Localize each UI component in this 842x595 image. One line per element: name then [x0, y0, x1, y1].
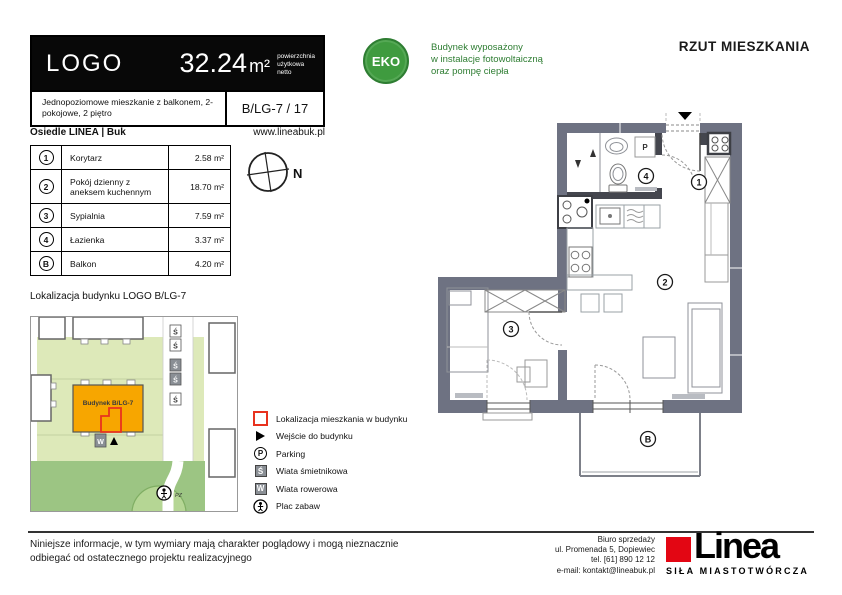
balcony-badge: B	[645, 434, 652, 444]
compass-rose-icon	[247, 152, 289, 192]
header-black-band: LOGO 32.24 m² powierzchnia użytkowa nett…	[32, 37, 323, 90]
corridor-fixtures	[705, 133, 730, 282]
brand-logo-wordmark: Linea	[694, 528, 778, 564]
bathroom-door-arc	[662, 155, 695, 188]
brand-tagline: SIŁA MIASTOTWÓRCZA	[666, 566, 814, 576]
area-note-line: netto	[277, 69, 291, 76]
chair	[517, 367, 530, 382]
header-card: LOGO 32.24 m² powierzchnia użytkowa nett…	[30, 35, 325, 127]
legend-item: Ś Wiata śmietnikowa	[252, 463, 427, 481]
sofa	[688, 303, 722, 393]
living-room-furniture	[595, 303, 722, 400]
dishwasher	[627, 210, 643, 223]
room-number-badge: 4	[39, 232, 54, 247]
page-title: RZUT MIESZKANIA	[636, 39, 810, 54]
bed	[447, 288, 488, 372]
compass-north-label: N	[293, 166, 302, 181]
header-subline: Osiedle LINEA | Buk www.lineabuk.pl	[30, 127, 325, 138]
area-note: powierzchnia użytkowa netto	[277, 51, 315, 77]
room-name: Balkon	[61, 252, 168, 275]
map-waste-label: Ś	[173, 342, 178, 351]
eco-text-line: w instalacje fotowoltaiczną	[431, 54, 543, 65]
map-bike-shelter-label: W	[97, 439, 104, 446]
map-waste-label: Ś	[173, 328, 178, 337]
window-sill	[483, 413, 532, 420]
room-name: Korytarz	[61, 146, 168, 169]
area-display: 32.24 m²	[179, 48, 270, 79]
bedroom-badge: 3	[508, 324, 513, 334]
eco-text-line: Budynek wyposażony	[431, 42, 523, 53]
tall-cabinet	[705, 203, 728, 282]
map-playground-label: PZ	[175, 493, 183, 499]
table-row: B Balkon 4.20 m²	[31, 252, 230, 275]
sales-office-info: Biuro sprzedaży ul. Promenada 5, Dopiewi…	[455, 535, 655, 576]
floor-plan: 1 4 2 3 B P	[430, 105, 765, 530]
eco-text: Budynek wyposażony w instalacje fotowolt…	[431, 38, 543, 84]
area-note-line: użytkowa	[277, 61, 304, 68]
room-area: 4.20 m²	[168, 252, 230, 275]
flat-plan-sheet: LOGO 32.24 m² powierzchnia użytkowa nett…	[0, 0, 842, 595]
room-area: 18.70 m²	[168, 170, 230, 203]
radiator	[455, 393, 483, 398]
site-map: Budynek B/LG-7 W Ś Ś Ś Ś Ś	[30, 316, 238, 512]
room-area: 3.37 m²	[168, 228, 230, 251]
website-url: www.lineabuk.pl	[253, 127, 325, 138]
disclaimer: Niniejsze informacje, w tym wymiary mają…	[30, 538, 398, 565]
map-waste-label: Ś	[173, 362, 178, 371]
legend-label: Parking	[276, 449, 305, 459]
playground-icon	[253, 499, 268, 514]
bar-stool	[604, 294, 622, 312]
installation-shaft	[558, 196, 592, 228]
disclaimer-line: odbiegać od ostatecznego projektu realiz…	[30, 553, 252, 564]
washing-machine-label: P	[642, 143, 648, 152]
table-row: 2 Pokój dzienny z aneksem kuchennym 18.7…	[31, 170, 230, 204]
office-line: tel. [61] 890 12 12	[591, 555, 655, 564]
entrance-arrow-icon	[678, 112, 692, 120]
legend-label: Plac zabaw	[276, 501, 320, 511]
bathroom-badge: 4	[643, 171, 648, 181]
legend-label: Wejście do budynku	[276, 431, 353, 441]
room-area: 2.58 m²	[168, 146, 230, 169]
balcony	[580, 413, 700, 476]
office-line: Biuro sprzedaży	[598, 535, 655, 544]
map-highlighted-building: Budynek B/LG-7	[73, 385, 143, 432]
room-number-badge: 2	[39, 179, 54, 194]
site-map-title: Lokalizacja budynku LOGO B/LG-7	[30, 291, 186, 302]
apartment-outline-icon	[253, 411, 268, 426]
unit-code: B/LG-7 / 17	[225, 92, 323, 125]
brand-logo-red-square	[666, 537, 691, 562]
radiator	[672, 394, 705, 399]
slope-arrow-icon	[575, 160, 581, 168]
rooms-table: 1 Korytarz 2.58 m² 2 Pokój dzienny z ane…	[30, 145, 231, 276]
table-row: 1 Korytarz 2.58 m²	[31, 146, 230, 170]
towel-radiator	[635, 187, 657, 191]
office-line: e-mail: kontakt@lineabuk.pl	[557, 566, 655, 575]
legend-label: Wiata śmietnikowa	[276, 466, 348, 476]
eco-section: EKO Budynek wyposażony w instalacje foto…	[363, 38, 543, 84]
disclaimer-line: Niniejsze informacje, w tym wymiary mają…	[30, 539, 398, 550]
eco-text-line: oraz pompę ciepła	[431, 66, 509, 77]
legend-item: Wejście do budynku	[252, 428, 427, 446]
balcony-door-arc	[595, 365, 630, 400]
desk	[525, 360, 547, 387]
parking-icon: P	[254, 447, 267, 460]
bar-stool	[581, 294, 599, 312]
room-name: Sypialnia	[61, 204, 168, 227]
map-building-label: Budynek B/LG-7	[83, 400, 134, 407]
room-number-badge: B	[39, 256, 54, 271]
entrance-arrow-icon	[256, 431, 265, 441]
toilet	[609, 185, 627, 192]
wardrobe	[485, 290, 565, 312]
map-waste-label: Ś	[173, 396, 178, 405]
bike-shelter-icon: W	[255, 483, 267, 495]
map-waste-shelters: Ś Ś Ś Ś Ś	[170, 325, 181, 405]
room-number-badge: 3	[39, 208, 54, 223]
legend: Lokalizacja mieszkania w budynku Wejście…	[252, 410, 427, 515]
living-room-badge: 2	[662, 277, 667, 287]
legend-item: P Parking	[252, 445, 427, 463]
area-note-line: powierzchnia	[277, 53, 315, 60]
developer-logo: LOGO	[46, 50, 123, 78]
map-bike-shelter: W	[95, 434, 106, 447]
window-swing-arc	[487, 360, 527, 400]
header-description-row: Jednopoziomowe mieszkanie z balkonem, 2-…	[32, 90, 323, 125]
coffee-table	[643, 337, 675, 378]
estate-name: Osiedle LINEA | Buk	[30, 127, 126, 138]
map-waste-label: Ś	[173, 376, 178, 385]
compass: N	[244, 145, 310, 204]
apartment-description: Jednopoziomowe mieszkanie z balkonem, 2-…	[32, 92, 225, 125]
table-row: 4 Łazienka 3.37 m²	[31, 228, 230, 252]
slope-arrow-icon	[590, 149, 596, 157]
corridor-badge: 1	[696, 177, 701, 187]
legend-label: Lokalizacja mieszkania w budynku	[276, 414, 407, 424]
area-value: 32.24	[179, 48, 247, 79]
eco-badge-icon: EKO	[363, 38, 409, 84]
room-name: Łazienka	[61, 228, 168, 251]
table-row: 3 Sypialnia 7.59 m²	[31, 204, 230, 228]
legend-item: W Wiata rowerowa	[252, 480, 427, 498]
bedroom-door-arc	[529, 312, 562, 345]
bathroom-fixtures	[575, 133, 695, 192]
stove	[569, 247, 592, 277]
legend-label: Wiata rowerowa	[276, 484, 338, 494]
room-area: 7.59 m²	[168, 204, 230, 227]
waste-shelter-icon: Ś	[255, 465, 267, 477]
legend-item: Plac zabaw	[252, 498, 427, 516]
entrance-door	[662, 112, 700, 171]
office-line: ul. Promenada 5, Dopiewiec	[555, 545, 655, 554]
pillow	[449, 291, 471, 305]
area-unit: m²	[249, 56, 270, 77]
room-name: Pokój dzienny z aneksem kuchennym	[61, 170, 168, 203]
bedroom-furniture	[447, 288, 565, 400]
room-number-badge: 1	[39, 150, 54, 165]
legend-item: Lokalizacja mieszkania w budynku	[252, 410, 427, 428]
